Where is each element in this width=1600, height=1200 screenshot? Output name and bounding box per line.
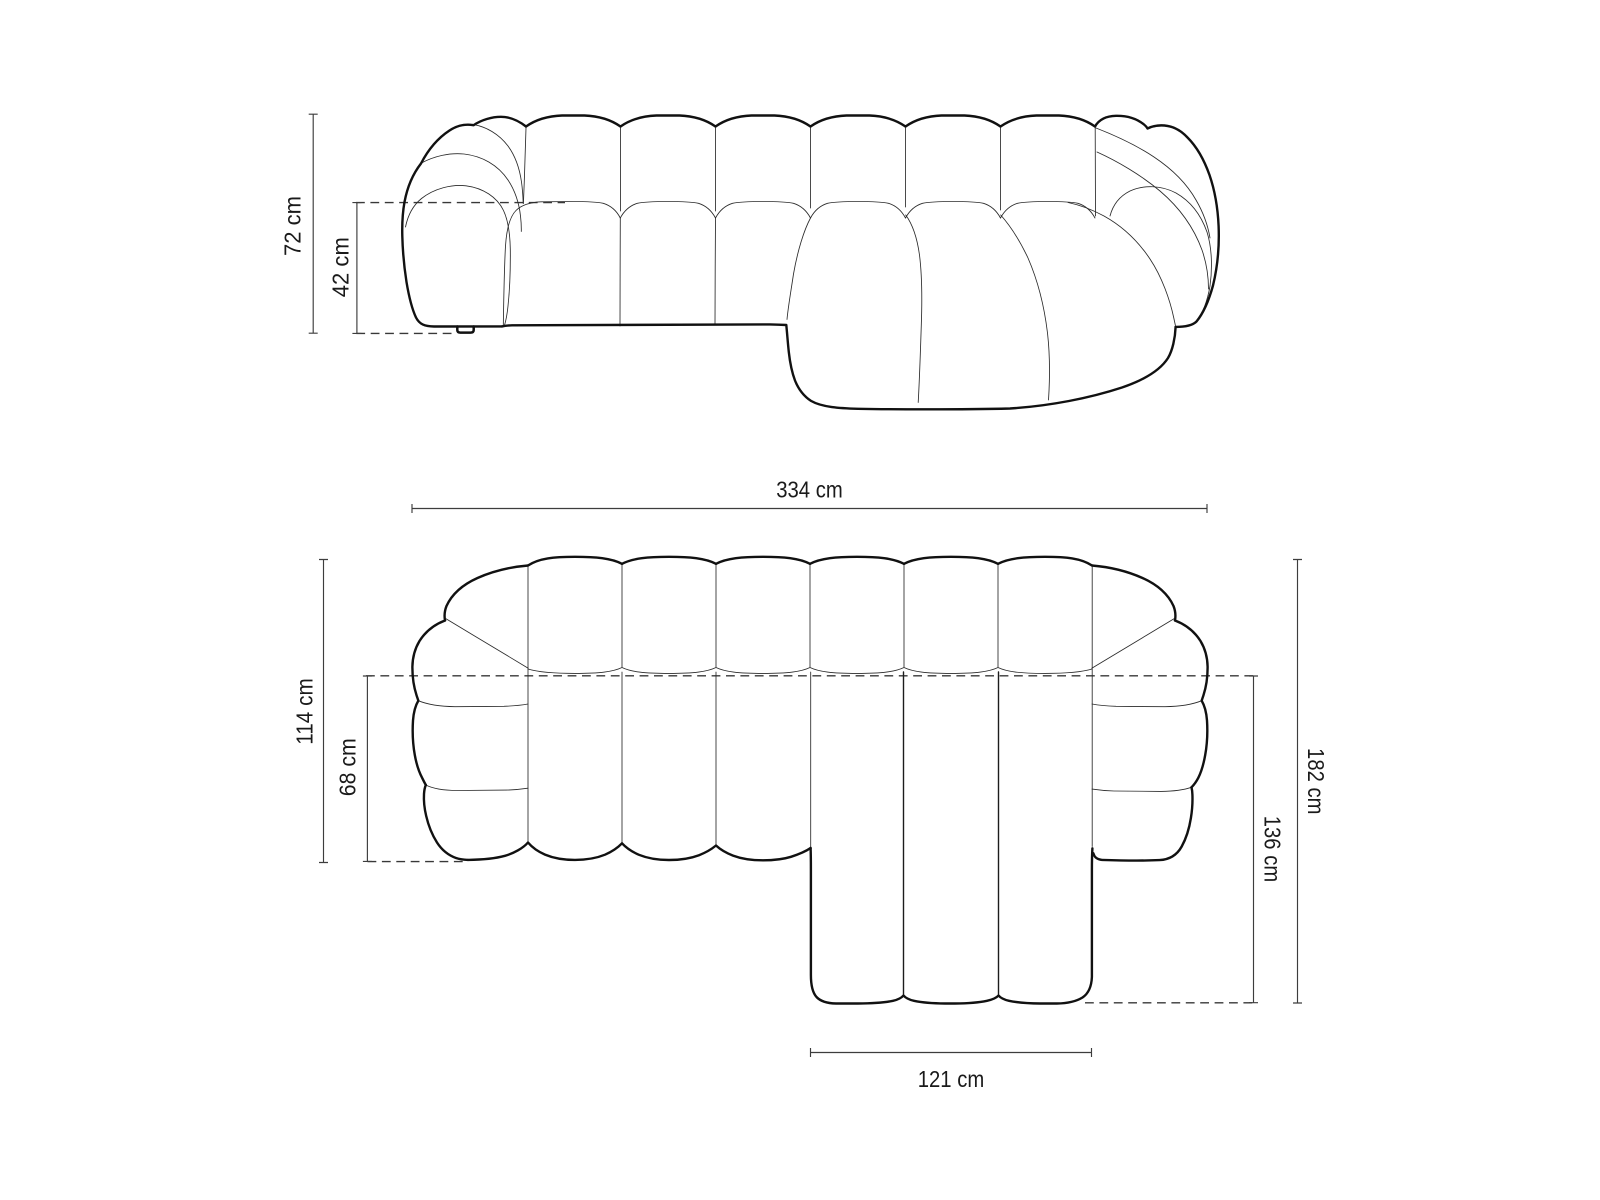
svg-text:121 cm: 121 cm bbox=[918, 1066, 985, 1092]
svg-text:42 cm: 42 cm bbox=[328, 237, 354, 297]
svg-text:68 cm: 68 cm bbox=[335, 738, 361, 796]
svg-text:136 cm: 136 cm bbox=[1260, 816, 1286, 883]
svg-text:182 cm: 182 cm bbox=[1303, 748, 1329, 815]
svg-text:334 cm: 334 cm bbox=[776, 476, 843, 502]
svg-text:72 cm: 72 cm bbox=[280, 196, 306, 256]
svg-text:114 cm: 114 cm bbox=[292, 678, 318, 745]
